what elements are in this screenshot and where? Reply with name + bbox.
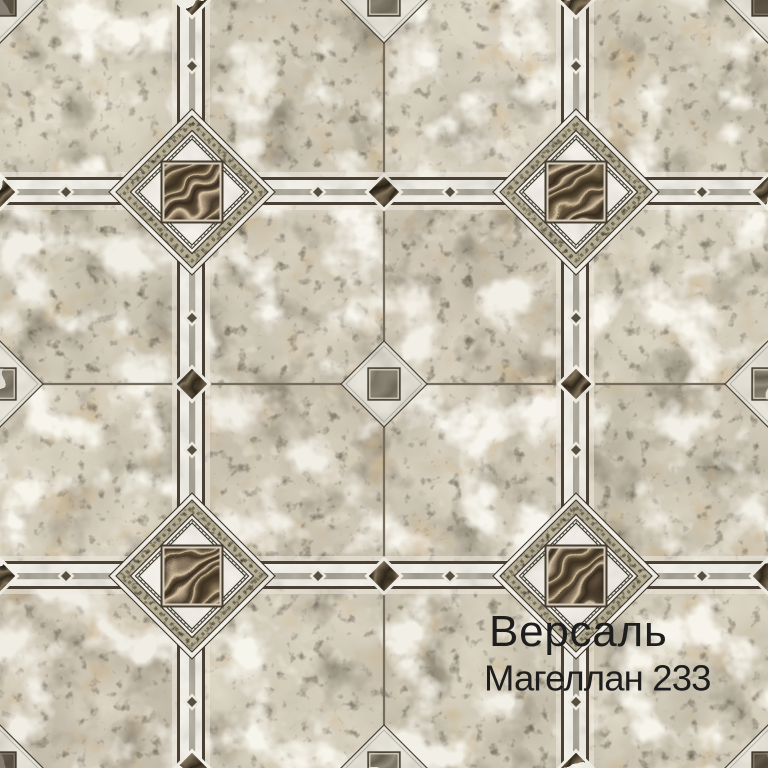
svg-text:Версаль: Версаль bbox=[489, 607, 668, 656]
svg-text:Магеллан 233: Магеллан 233 bbox=[484, 658, 711, 699]
